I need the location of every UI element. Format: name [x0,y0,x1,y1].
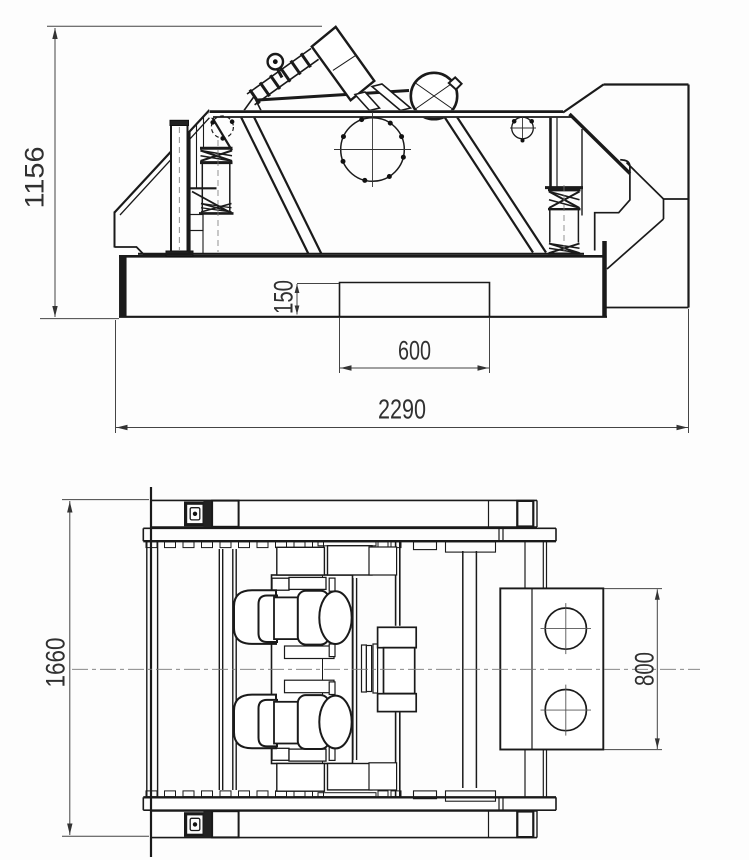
svg-text:150: 150 [269,280,299,314]
svg-text:2290: 2290 [378,394,426,425]
svg-text:1660: 1660 [41,638,71,688]
svg-text:800: 800 [630,652,660,686]
svg-text:1156: 1156 [20,147,50,209]
svg-text:600: 600 [398,336,431,366]
